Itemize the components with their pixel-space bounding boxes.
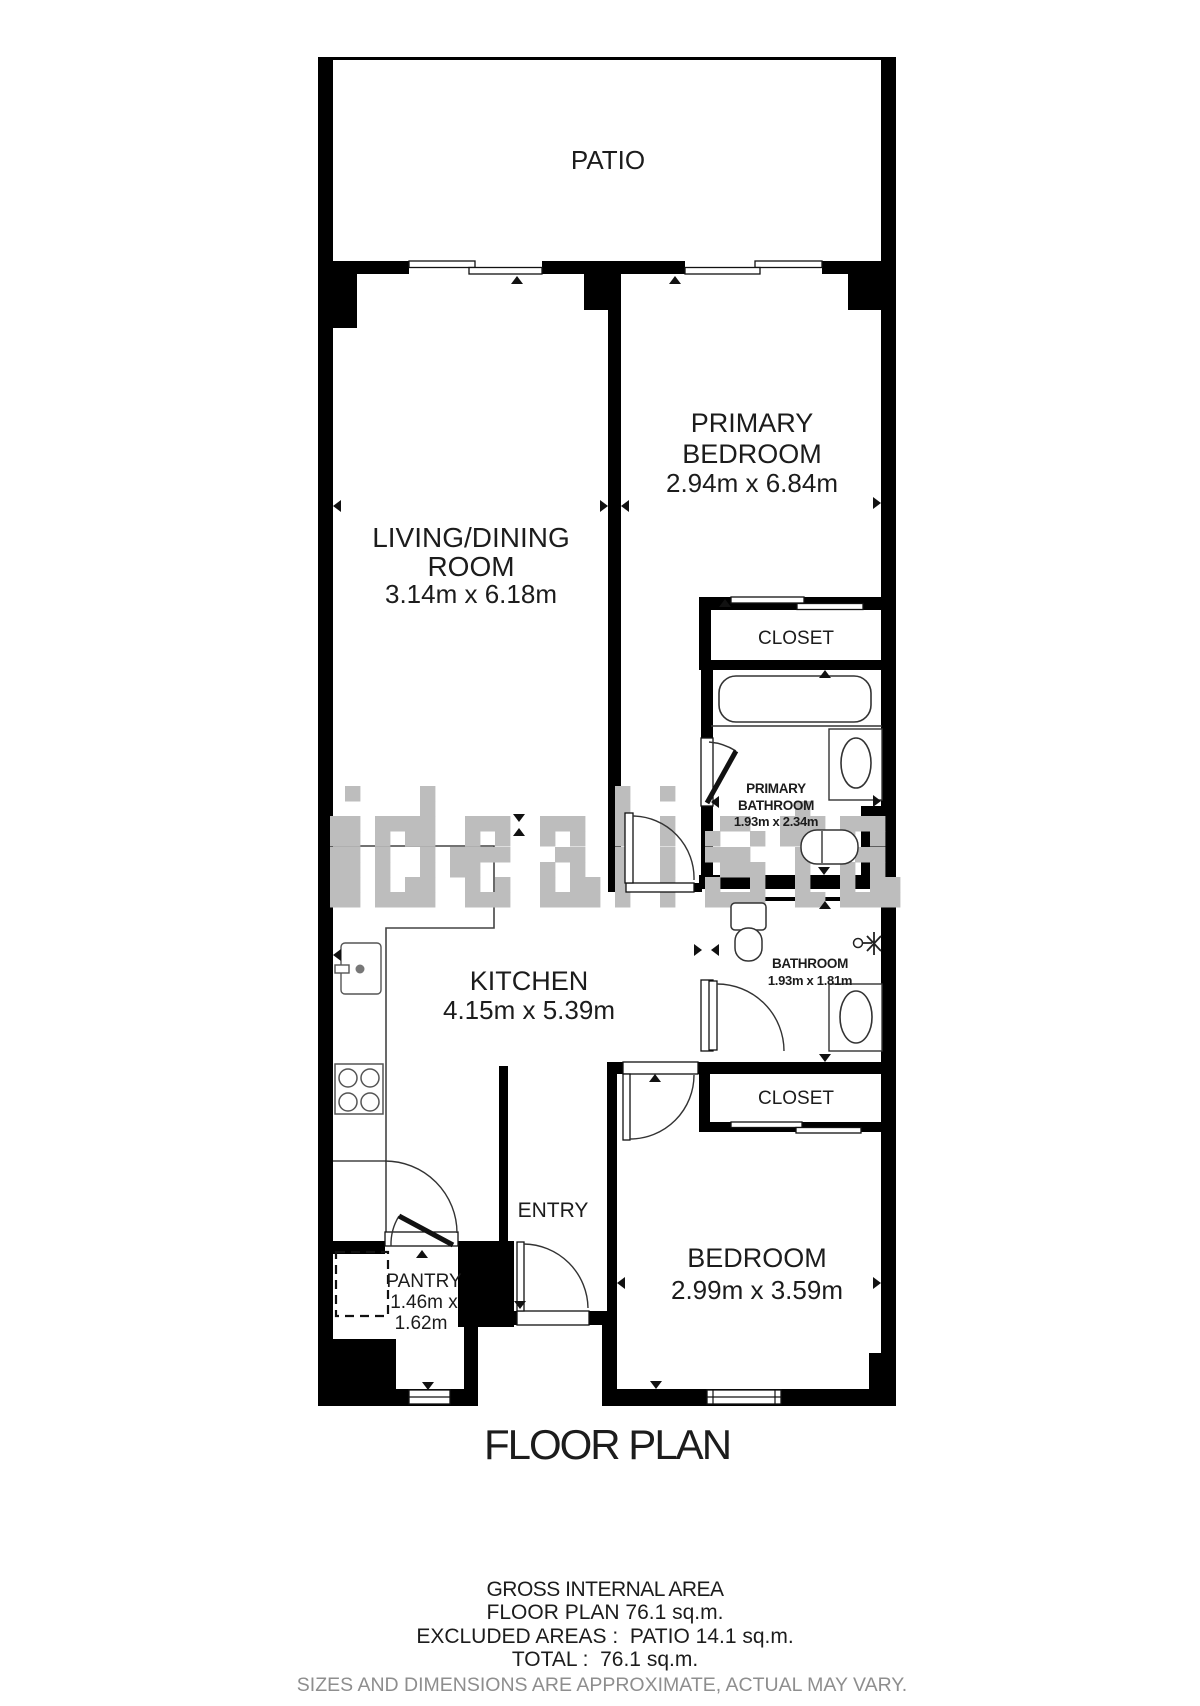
svg-text:PRIMARY: PRIMARY [746,781,806,796]
svg-text:GROSS INTERNAL AREA: GROSS INTERNAL AREA [486,1578,724,1601]
svg-text:PATIO: PATIO [571,145,645,175]
svg-text:FLOOR PLAN: FLOOR PLAN [484,1421,730,1468]
svg-text:LIVING/DINING: LIVING/DINING [372,522,570,553]
svg-text:1.62m: 1.62m [395,1313,448,1334]
svg-text:PANTRY: PANTRY [386,1271,462,1292]
svg-text:BEDROOM: BEDROOM [682,439,822,469]
svg-text:EXCLUDED AREAS : PATIO 14.1 s: EXCLUDED AREAS : PATIO 14.1 sq.m. [416,1625,793,1648]
svg-text:3.14m x 6.18m: 3.14m x 6.18m [385,579,557,609]
svg-text:BATHROOM: BATHROOM [772,956,848,971]
svg-text:FLOOR PLAN 76.1 sq.m.: FLOOR PLAN 76.1 sq.m. [487,1601,724,1624]
svg-text:BATHROOM: BATHROOM [738,798,814,813]
svg-text:ROOM: ROOM [427,551,514,582]
svg-text:ENTRY: ENTRY [518,1199,589,1222]
svg-text:BEDROOM: BEDROOM [687,1243,827,1273]
svg-text:SIZES AND DIMENSIONS ARE APPRO: SIZES AND DIMENSIONS ARE APPROXIMATE, AC… [297,1674,907,1696]
svg-text:2.94m x 6.84m: 2.94m x 6.84m [666,468,838,498]
svg-text:4.15m x 5.39m: 4.15m x 5.39m [443,995,615,1025]
svg-text:1.46m x: 1.46m x [390,1292,458,1313]
svg-text:CLOSET: CLOSET [758,1088,834,1109]
svg-text:1.93m x 2.34m: 1.93m x 2.34m [734,814,818,829]
svg-text:TOTAL : 76.1 sq.m.: TOTAL : 76.1 sq.m. [512,1648,698,1671]
svg-text:KITCHEN: KITCHEN [470,966,589,996]
svg-text:PRIMARY: PRIMARY [691,408,814,438]
svg-text:CLOSET: CLOSET [758,628,834,649]
svg-text:2.99m x 3.59m: 2.99m x 3.59m [671,1275,843,1305]
svg-text:1.93m x 1.81m: 1.93m x 1.81m [768,973,852,988]
